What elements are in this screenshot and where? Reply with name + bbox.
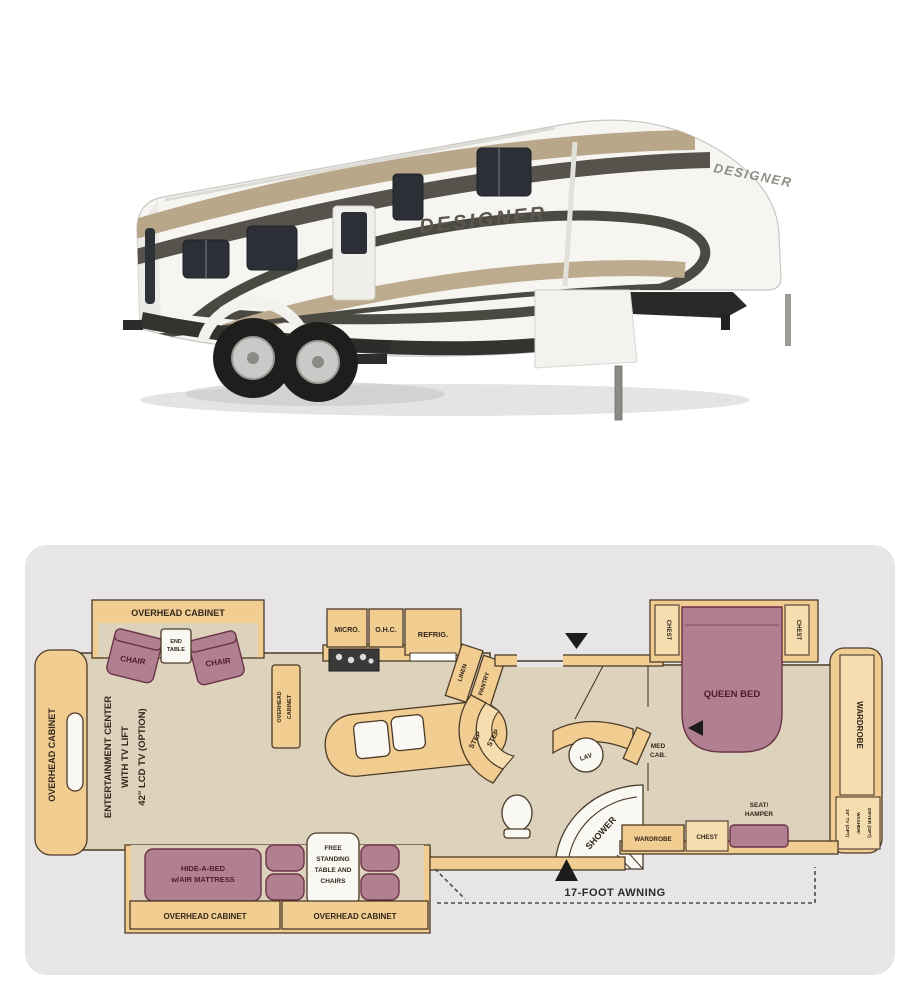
- refrig-label: REFRIG.: [418, 630, 448, 639]
- slide-window-small: [393, 174, 423, 220]
- chest-label: CHEST: [665, 620, 671, 641]
- sink-basin-right: [391, 714, 426, 751]
- free-standing-table: FREE STANDING TABLE AND CHAIRS: [307, 833, 359, 907]
- bottom-chest-label: CHEST: [696, 834, 717, 841]
- burner: [348, 657, 354, 663]
- rear-window-slot: [145, 228, 155, 304]
- corner-opt-line3: DRYER (OPT): [867, 808, 872, 838]
- rv-photo-canvas: DESIGNER DESIGNER: [85, 100, 835, 440]
- floorplan-canvas: OVERHEAD CABINET ENTERTAINMENT CENTER WI…: [25, 545, 895, 975]
- mid-window: [247, 226, 297, 270]
- mid-overhead-cabinet: OVERHEAD CABINET: [272, 665, 300, 748]
- end-table-line2: TABLE: [167, 647, 185, 653]
- free-standing-line4: CHAIRS: [321, 878, 347, 885]
- bottom-wardrobe-label: WARDROBE: [634, 836, 671, 843]
- rv-photo: DESIGNER DESIGNER: [85, 100, 835, 440]
- slideout-overhead-cabinet-label: OVERHEAD CABINET: [131, 608, 225, 618]
- bottom-ohc-right-label: OVERHEAD CABINET: [313, 912, 396, 921]
- landing-leg-front: [615, 366, 622, 420]
- free-standing-line1: FREE: [324, 845, 342, 852]
- dinette-chair: [361, 874, 399, 900]
- nightstand-chest-left: CHEST: [655, 605, 679, 655]
- awning-label: 17-FOOT AWNING: [564, 887, 665, 899]
- med-cab-line2: CAB.: [650, 752, 666, 759]
- burner: [360, 654, 366, 660]
- seat-hamper-line1: SEAT/: [750, 802, 769, 809]
- dinette-chair: [266, 845, 304, 871]
- toilet-tank: [504, 829, 530, 838]
- queen-bed-label: QUEEN BED: [704, 689, 761, 700]
- micro-label: MICRO.: [334, 627, 359, 634]
- entry-steps-lower: [353, 354, 387, 364]
- sofa-dinette-slideout: HIDE-A-BED w/AIR MATTRESS FREE STANDING …: [125, 833, 430, 933]
- corner-opt-line1: 19" TV (OPT): [845, 809, 850, 838]
- front-compartment: [535, 290, 637, 368]
- ent-line3: 42" LCD TV (OPTION): [137, 708, 148, 805]
- sink-basin-left: [353, 720, 391, 759]
- chest-label: CHEST: [795, 620, 801, 641]
- right-end-area: WARDROBE 19" TV (OPT) WASHER/ DRYER (OPT…: [830, 648, 882, 853]
- tv-lift-slot: [67, 713, 83, 791]
- corner-opt-line2: WASHER/: [856, 812, 861, 834]
- wheel: [278, 322, 358, 402]
- end-table-line1: END: [170, 639, 182, 645]
- refrig-vent: [410, 653, 456, 661]
- dinette-chair: [361, 845, 399, 871]
- rear-bumper: [123, 320, 143, 330]
- door-window: [341, 212, 367, 254]
- landing-leg-rear: [785, 294, 791, 346]
- nightstand-chest-right: CHEST: [785, 605, 809, 655]
- burner: [368, 658, 373, 663]
- hide-a-bed-line1: HIDE-A-BED: [181, 864, 226, 873]
- end-table: END TABLE: [161, 629, 191, 663]
- mid-ohc-line1: OVERHEAD: [277, 691, 283, 722]
- floorplan-diagram: OVERHEAD CABINET ENTERTAINMENT CENTER WI…: [25, 545, 895, 975]
- free-standing-line2: STANDING: [316, 856, 349, 863]
- bath-bottom-wall: [423, 857, 625, 870]
- wardrobe-label: WARDROBE: [855, 701, 864, 749]
- kingpin: [721, 314, 730, 330]
- bottom-ohc-left-label: OVERHEAD CABINET: [163, 912, 246, 921]
- awning-dash-diagonal: [435, 869, 465, 899]
- free-standing-line3: TABLE AND: [315, 867, 352, 874]
- left-overhead-cabinet-label: OVERHEAD CABINET: [47, 708, 57, 802]
- dinette-chair: [266, 874, 304, 900]
- entry-arrow-icon: [565, 633, 588, 649]
- ent-line1: ENTERTAINMENT CENTER: [103, 696, 114, 818]
- med-cab-line1: MED: [651, 743, 666, 750]
- burner: [336, 654, 342, 660]
- slide-window-large: [477, 148, 531, 196]
- seat-hamper: [730, 825, 788, 847]
- toilet-icon: [502, 795, 532, 831]
- seat-hamper-line2: HAMPER: [745, 811, 773, 818]
- ohc-label: O.H.C.: [375, 627, 396, 634]
- mid-ohc-line2: CABINET: [287, 694, 293, 719]
- hide-a-bed-line2: w/AIR MATTRESS: [170, 875, 235, 884]
- ent-line2: WITH TV LIFT: [120, 726, 131, 788]
